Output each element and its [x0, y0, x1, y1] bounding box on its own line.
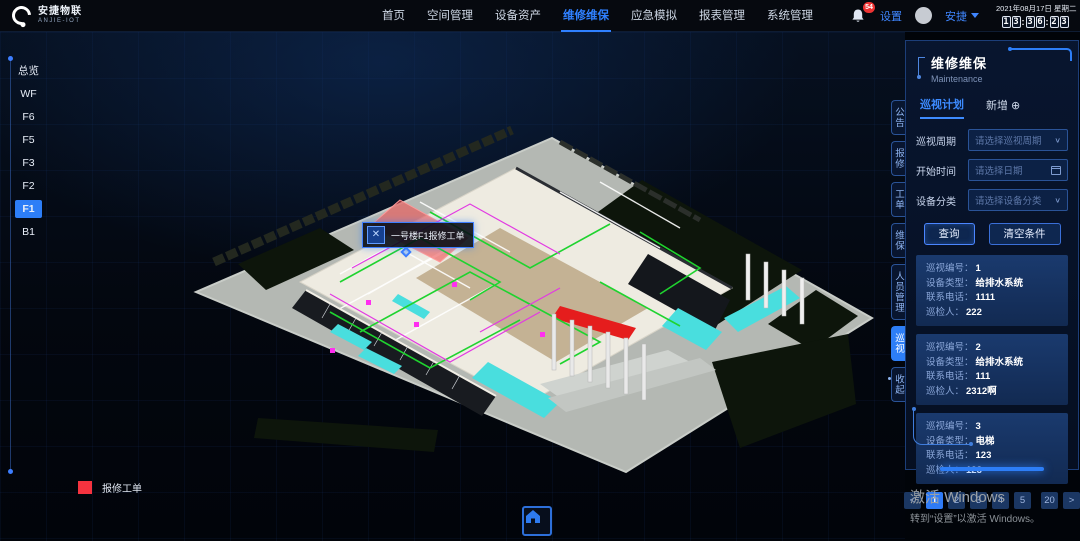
clear-conditions-button[interactable]: 清空条件: [989, 223, 1061, 245]
patrol-card-list: 巡视编号：1 设备类型：给排水系统 联系电话：1111 巡检人：222 巡视编号…: [916, 255, 1068, 484]
logo-title: 安捷物联: [38, 6, 82, 17]
plus-circle-icon: ⊕: [1011, 99, 1020, 112]
legend-label: 报修工单: [102, 480, 142, 495]
legend-color-swatch: [78, 481, 92, 494]
clock: 2021年08月17日 星期二 1 3 : 3 6 : 2 3: [996, 3, 1074, 28]
windows-activation-watermark: 激活 Windows 转到“设置”以激活 Windows。: [910, 486, 1040, 525]
time-display: 1 3 : 3 6 : 2 3: [996, 16, 1074, 28]
page-button-last[interactable]: 20: [1041, 492, 1058, 509]
collapse-dot-icon: [888, 377, 891, 380]
chevron-down-icon: ∨: [1054, 196, 1061, 205]
floor-b1[interactable]: B1: [15, 223, 42, 241]
side-tab-maintenance[interactable]: 维保: [891, 223, 905, 258]
panel-title: 维修维保: [931, 53, 987, 72]
top-navbar: 安捷物联 ANJIE-IOT 首页 空间管理 设备资产 维修维保 应急模拟 报表…: [0, 0, 1080, 32]
nav-home[interactable]: 首页: [382, 0, 405, 32]
weekday-label: 星期二: [1054, 4, 1077, 13]
chevron-down-icon: [971, 13, 979, 18]
time-digit: 6: [1036, 16, 1045, 28]
floor-selector: 总览 WF F6 F5 F3 F2 F1 B1: [15, 62, 42, 241]
floor-f6[interactable]: F6: [15, 108, 42, 126]
avatar[interactable]: [915, 7, 932, 24]
query-button[interactable]: 查询: [924, 223, 975, 245]
start-date-picker[interactable]: 请选择日期: [968, 159, 1068, 181]
3d-model-canvas[interactable]: [0, 32, 905, 541]
tab-add-new[interactable]: 新增 ⊕: [986, 96, 1020, 119]
patrol-cycle-select[interactable]: 请选择巡视周期 ∨: [968, 129, 1068, 151]
patrol-filter-form: 巡视周期 请选择巡视周期 ∨ 开始时间 请选择日期 设备分类 请选择设备分类 ∨: [916, 129, 1068, 245]
legend: 报修工单: [78, 480, 142, 495]
side-tab-work-orders[interactable]: 工单: [891, 182, 905, 217]
patrol-card[interactable]: 巡视编号：2 设备类型：给排水系统 联系电话：111 巡检人：2312啊: [916, 334, 1068, 405]
panel-bottom-glow: [940, 467, 1044, 471]
home-icon: [524, 508, 542, 525]
device-category-label: 设备分类: [916, 193, 968, 208]
panel-corner-decoration-bottom: [913, 409, 971, 445]
maintenance-icon: ✕: [367, 226, 385, 244]
user-name: 安捷: [945, 8, 967, 24]
logo-subtitle: ANJIE-IOT: [38, 17, 82, 25]
alarm-tooltip-text: 一号楼F1报修工单: [391, 229, 465, 242]
floor-f1[interactable]: F1: [15, 200, 42, 218]
maintenance-panel: 维修维保 Maintenance 巡视计划 新增 ⊕ 巡视周期 请选择巡视周期 …: [905, 40, 1079, 470]
side-tab-announcements[interactable]: 公告: [891, 100, 905, 135]
floor-f3[interactable]: F3: [15, 154, 42, 172]
user-menu[interactable]: 安捷: [945, 8, 979, 24]
floor-guide-line: [10, 58, 11, 472]
windows-activation-title: 激活 Windows: [910, 486, 1040, 507]
nav-device-assets[interactable]: 设备资产: [495, 0, 541, 32]
nav-system-management[interactable]: 系统管理: [767, 0, 813, 32]
date-label: 2021年08月17日: [996, 4, 1052, 13]
side-tab-personnel[interactable]: 人员管理: [891, 264, 905, 320]
panel-tabs: 巡视计划 新增 ⊕: [920, 96, 1064, 119]
floor-wf[interactable]: WF: [15, 85, 42, 103]
tab-patrol-plan[interactable]: 巡视计划: [920, 96, 964, 119]
time-digit: 2: [1050, 16, 1059, 28]
panel-corner-decoration-top: [1010, 48, 1072, 61]
building-3d-view[interactable]: ✕ 一号楼F1报修工单 总览 WF F6 F5 F3 F2 F1 B1 报修工单: [0, 32, 905, 541]
nav-report-management[interactable]: 报表管理: [699, 0, 745, 32]
patrol-cycle-label: 巡视周期: [916, 133, 968, 148]
logo-icon: [8, 2, 35, 29]
nav-maintenance[interactable]: 维修维保: [563, 0, 609, 32]
panel-subtitle: Maintenance: [931, 74, 987, 84]
side-tab-patrol[interactable]: 巡视: [891, 326, 905, 361]
time-digit: 3: [1060, 16, 1069, 28]
time-digit: 1: [1002, 16, 1011, 28]
page-next-button[interactable]: >: [1063, 492, 1080, 509]
app-root: 安捷物联 ANJIE-IOT 首页 空间管理 设备资产 维修维保 应急模拟 报表…: [0, 0, 1080, 541]
side-tab-collapse[interactable]: 收起: [891, 367, 905, 402]
floor-f2[interactable]: F2: [15, 177, 42, 195]
title-bracket-decoration: [918, 57, 925, 77]
reset-view-button[interactable]: [522, 506, 552, 536]
alarm-tooltip: ✕ 一号楼F1报修工单: [362, 222, 474, 248]
time-digit: 3: [1012, 16, 1021, 28]
nav-emergency-simulation[interactable]: 应急模拟: [631, 0, 677, 32]
floor-overview[interactable]: 总览: [15, 62, 42, 80]
calendar-icon: [1051, 166, 1061, 175]
time-digit: 3: [1026, 16, 1035, 28]
windows-activation-subtitle: 转到“设置”以激活 Windows。: [910, 510, 1040, 525]
floor-f5[interactable]: F5: [15, 131, 42, 149]
notification-badge: 54: [863, 2, 875, 13]
device-category-select[interactable]: 请选择设备分类 ∨: [968, 189, 1068, 211]
patrol-card[interactable]: 巡视编号：1 设备类型：给排水系统 联系电话：1111 巡检人：222: [916, 255, 1068, 326]
logo: 安捷物联 ANJIE-IOT: [12, 6, 82, 25]
main-menu: 首页 空间管理 设备资产 维修维保 应急模拟 报表管理 系统管理: [382, 0, 813, 32]
chevron-down-icon: ∨: [1054, 136, 1061, 145]
side-tab-strip: 公告 报修 工单 维保 人员管理 巡视 收起: [891, 100, 905, 402]
side-tab-repair[interactable]: 报修: [891, 141, 905, 176]
navbar-right: 54 设置 安捷 2021年08月17日 星期二 1 3 : 3 6: [849, 3, 1074, 28]
start-time-label: 开始时间: [916, 163, 968, 178]
notification-bell[interactable]: 54: [849, 7, 867, 25]
nav-space-management[interactable]: 空间管理: [427, 0, 473, 32]
settings-link[interactable]: 设置: [880, 8, 902, 24]
